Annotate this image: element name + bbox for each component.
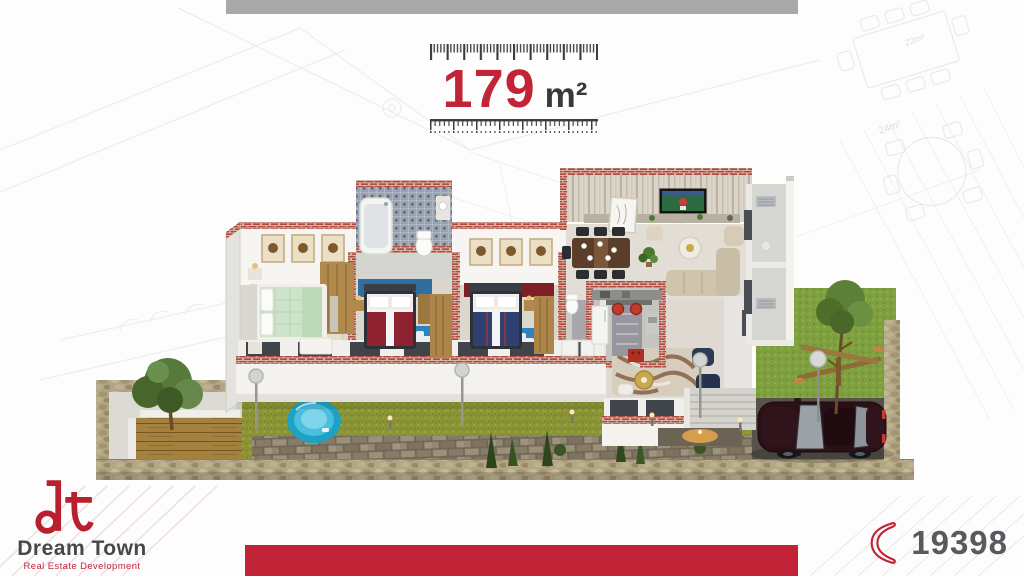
phone-number: 19398 bbox=[911, 524, 1008, 562]
handset-icon bbox=[867, 520, 901, 566]
tv bbox=[660, 189, 706, 213]
ac-unit bbox=[756, 196, 776, 207]
ac-unit bbox=[756, 298, 776, 309]
wall-art-frames bbox=[470, 239, 552, 265]
dt-monogram-icon: dt bbox=[2, 476, 102, 538]
contact-phone: 19398 bbox=[867, 520, 1008, 566]
wall-art-frames bbox=[262, 235, 344, 262]
brand-name: Dream Town bbox=[2, 538, 162, 560]
bottom-accent-band bbox=[245, 545, 798, 576]
company-logo: dt Dream Town Real Estate Development bbox=[2, 476, 162, 572]
brand-tagline: Real Estate Development bbox=[2, 561, 162, 572]
real-estate-flyer: 22m² 24m² bbox=[0, 0, 1024, 576]
car bbox=[750, 398, 894, 463]
